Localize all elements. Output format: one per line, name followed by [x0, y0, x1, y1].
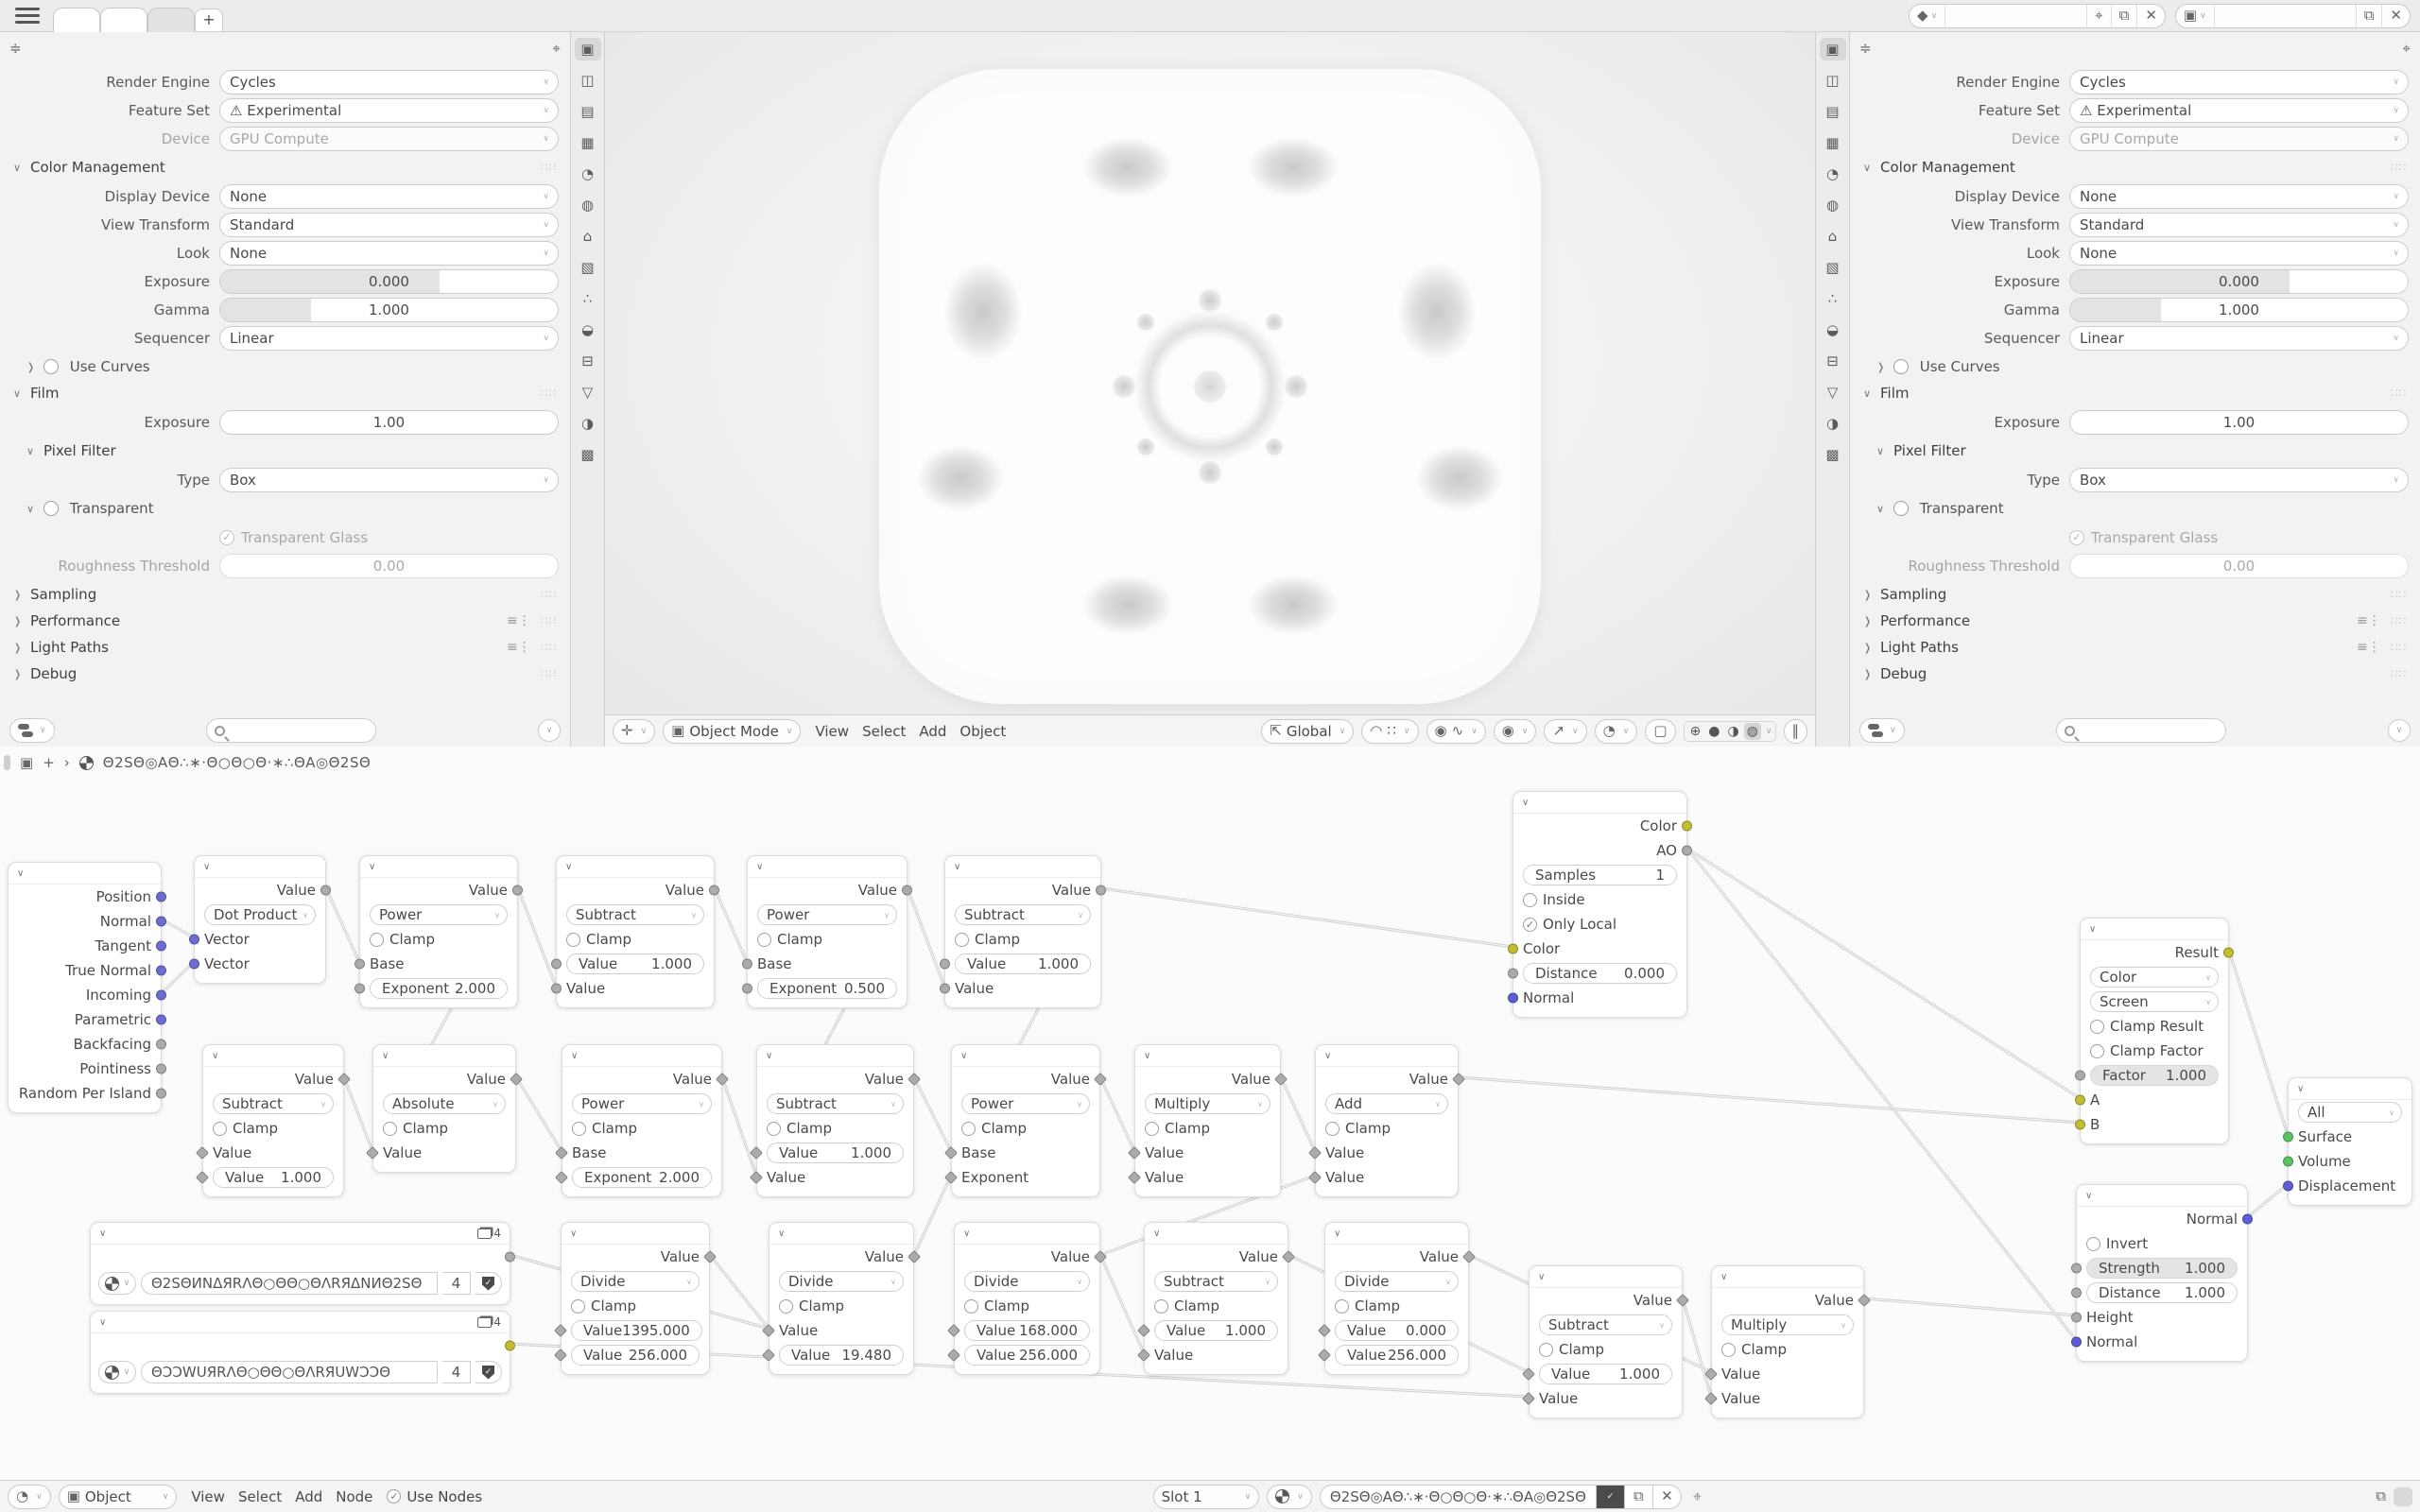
value-field-value[interactable]: Value1.000: [955, 954, 1091, 974]
properties-tab-object-data[interactable]: ▽: [1820, 381, 1846, 404]
drag-dots-icon[interactable]: ∷∷: [541, 614, 557, 627]
image-name-field[interactable]: ΘƆƆWUЯRΛΘ○ΘΘ○ΘΛRЯUWƆƆΘ: [141, 1361, 438, 1383]
node-editor-type-button[interactable]: ◔∨: [8, 1485, 51, 1509]
proportional-editing-controls[interactable]: ◉∿∨: [1426, 719, 1486, 744]
output-socket[interactable]: [505, 1341, 515, 1351]
section-sampling[interactable]: ❭Sampling∷∷: [1850, 581, 2420, 608]
properties-tab-world[interactable]: ◍: [575, 194, 601, 216]
output-socket[interactable]: [156, 892, 166, 902]
xray-toggle[interactable]: ▢: [1645, 719, 1675, 744]
value-field-value[interactable]: Value1.000: [1154, 1320, 1278, 1341]
checkbox-clamp[interactable]: Clamp: [961, 1120, 1027, 1137]
node-header[interactable]: ∨4: [91, 1312, 510, 1333]
output-socket[interactable]: [156, 1064, 166, 1074]
node-operation-dropdown[interactable]: Divide∨: [1335, 1271, 1459, 1292]
node-math-multiply-1[interactable]: ∨ValueMultiply∨ClampValueValue: [1134, 1044, 1281, 1197]
section-pixel-filter[interactable]: ∨Pixel Filter: [0, 438, 570, 464]
node-math-multiply-2[interactable]: ∨ValueMultiply∨ClampValueValue: [1711, 1265, 1864, 1418]
properties-tab-physics[interactable]: ◒: [575, 318, 601, 341]
properties-tab-constraints[interactable]: ⊟: [575, 350, 601, 372]
node-header[interactable]: ∨4: [91, 1223, 510, 1245]
node-operation-dropdown[interactable]: All∨: [2298, 1102, 2402, 1123]
node-header[interactable]: ∨: [2289, 1078, 2411, 1100]
properties-tab-tool[interactable]: ▣: [575, 38, 601, 60]
output-socket[interactable]: [156, 990, 166, 1001]
workspace-tab-3[interactable]: [147, 8, 195, 32]
properties-tab-tool[interactable]: ▣: [1820, 38, 1846, 60]
dropdown-look[interactable]: None∨: [219, 241, 559, 266]
field-gamma[interactable]: 1.000: [2069, 298, 2409, 322]
output-socket[interactable]: [156, 941, 166, 952]
filter-toggle-button[interactable]: ∨: [1859, 718, 1905, 743]
fake-user-toggle[interactable]: ✓: [1597, 1485, 1625, 1509]
section-color-management[interactable]: ∨Color Management∷∷: [1850, 154, 2420, 180]
value-field-value[interactable]: Value256.000: [1335, 1345, 1459, 1366]
node-operation-dropdown[interactable]: Color∨: [2090, 967, 2219, 988]
node-material-output[interactable]: ∨All∨SurfaceVolumeDisplacement: [2288, 1077, 2412, 1206]
node-math-power-3[interactable]: ∨ValuePower∨ClampBaseExponent2.000: [562, 1044, 722, 1197]
output-socket[interactable]: [512, 885, 523, 896]
input-socket[interactable]: [1508, 969, 1518, 979]
output-socket[interactable]: [2242, 1214, 2253, 1225]
section-light-paths[interactable]: ❭Light Paths≡⋮∷∷: [0, 634, 570, 661]
preset-list-icon[interactable]: ≡⋮: [507, 640, 531, 655]
properties-tab-constraints[interactable]: ⊟: [1820, 350, 1846, 372]
input-socket[interactable]: [940, 959, 950, 970]
dropdown-sequencer[interactable]: Linear∨: [219, 326, 559, 351]
properties-tab-render[interactable]: ◫: [1820, 69, 1846, 92]
checkbox-inside[interactable]: Inside: [1523, 891, 1585, 908]
dropdown-view-transform[interactable]: Standard∨: [2069, 213, 2409, 237]
node-header[interactable]: ∨: [955, 1223, 1099, 1245]
drag-dots-icon[interactable]: ∷∷: [2391, 588, 2407, 601]
image-users-count[interactable]: 4: [442, 1272, 471, 1295]
drag-dots-icon[interactable]: ∷∷: [541, 387, 557, 400]
section-debug[interactable]: ❭Debug∷∷: [1850, 661, 2420, 687]
dropdown-render-engine[interactable]: Cycles∨: [219, 70, 559, 94]
checkbox-clamp[interactable]: Clamp: [213, 1120, 278, 1137]
properties-tab-particles[interactable]: ∴: [1820, 287, 1846, 310]
drag-dots-icon[interactable]: ∷∷: [541, 667, 557, 680]
node-math-subtract-5[interactable]: ∨ValueSubtract∨ClampValue1.000Value: [1144, 1222, 1288, 1375]
scene-browse-button[interactable]: ◆∨: [1910, 5, 1945, 27]
material-name-field[interactable]: Θ2SΘ◎AΘ∴∗·Θ○Θ○Θ·∗∴ΘA◎Θ2SΘ: [1320, 1485, 1597, 1509]
field-roughness-threshold[interactable]: 0.00: [219, 554, 559, 578]
node-header[interactable]: ∨: [1712, 1266, 1863, 1288]
value-field-distance[interactable]: Distance1.000: [2086, 1282, 2238, 1303]
input-socket[interactable]: [1508, 993, 1518, 1004]
shading-material-button[interactable]: ◑: [1724, 723, 1741, 740]
input-socket[interactable]: [2071, 1313, 2082, 1323]
output-socket[interactable]: [1682, 846, 1692, 856]
output-socket[interactable]: [1096, 885, 1106, 896]
output-socket[interactable]: [156, 1039, 166, 1050]
node-operation-dropdown[interactable]: Multiply∨: [1145, 1093, 1270, 1114]
node-operation-dropdown[interactable]: Subtract∨: [566, 904, 704, 925]
node-bump[interactable]: ∨NormalInvertStrength1.000Distance1.000H…: [2076, 1184, 2248, 1362]
node-header[interactable]: ∨: [1135, 1045, 1280, 1067]
value-field-value[interactable]: Value1.000: [213, 1167, 334, 1188]
node-menu-node[interactable]: Node: [329, 1488, 379, 1505]
input-socket[interactable]: [551, 959, 562, 970]
image-users-count[interactable]: 4: [442, 1361, 471, 1383]
section-sampling[interactable]: ❭Sampling∷∷: [0, 581, 570, 608]
section-debug[interactable]: ❭Debug∷∷: [0, 661, 570, 687]
viewport-object[interactable]: [879, 69, 1541, 704]
node-header[interactable]: ∨: [557, 856, 714, 878]
fake-user-toggle[interactable]: ✓: [475, 1361, 502, 1383]
image-browse-button[interactable]: ∨: [98, 1361, 136, 1383]
properties-tab-material[interactable]: ◑: [1820, 412, 1846, 435]
workspace-tab-1[interactable]: [53, 8, 100, 32]
dropdown-display-device[interactable]: None∨: [219, 184, 559, 209]
checkbox-clamp[interactable]: Clamp: [779, 1297, 844, 1314]
shading-solid-button[interactable]: ●: [1705, 723, 1722, 740]
section-transparent[interactable]: ∨ Transparent: [0, 495, 570, 522]
overlays-dropdown[interactable]: ◔∨: [1595, 719, 1638, 744]
node-header[interactable]: ∨: [203, 1045, 343, 1067]
properties-tab-modifiers[interactable]: ▧: [1820, 256, 1846, 279]
input-socket[interactable]: [2283, 1132, 2293, 1143]
input-socket[interactable]: [354, 959, 365, 970]
visibility-dropdown[interactable]: ◉∨: [1494, 719, 1537, 744]
output-socket[interactable]: [902, 885, 912, 896]
node-image-texture-1[interactable]: ∨4∨Θ2SΘИNΔЯRΛΘ○ΘΘ○ΘΛRЯΔNИΘ2SΘ4✓: [90, 1222, 510, 1305]
input-socket[interactable]: [940, 984, 950, 994]
output-socket[interactable]: [156, 966, 166, 976]
node-header[interactable]: ∨: [373, 1045, 515, 1067]
properties-tab-object[interactable]: ⌂: [575, 225, 601, 248]
checkbox-clamp[interactable]: Clamp: [1154, 1297, 1219, 1314]
shading-rendered-button[interactable]: ◍: [1744, 723, 1761, 740]
image-name-field[interactable]: Θ2SΘИNΔЯRΛΘ○ΘΘ○ΘΛRЯΔNИΘ2SΘ: [141, 1272, 438, 1295]
node-math-add[interactable]: ∨ValueAdd∨ClampValueValue: [1315, 1044, 1459, 1197]
fake-user-toggle[interactable]: ✓: [475, 1272, 502, 1295]
node-math-subtract-6[interactable]: ∨ValueSubtract∨ClampValue1.000Value: [1529, 1265, 1683, 1418]
properties-tab-world[interactable]: ◍: [1820, 194, 1846, 216]
node-header[interactable]: ∨: [952, 1045, 1099, 1067]
field-exposure[interactable]: 1.00: [219, 410, 559, 435]
properties-tab-material[interactable]: ◑: [575, 412, 601, 435]
node-header[interactable]: ∨: [2081, 919, 2228, 940]
properties-editor-icon[interactable]: ≑: [1859, 42, 1872, 56]
node-canvas[interactable]: ▣ + › Θ2SΘ◎AΘ∴∗·Θ○Θ○Θ·∗∴ΘA◎Θ2SΘ ∨Positio…: [0, 747, 2420, 1480]
checkbox-invert[interactable]: Invert: [2086, 1235, 2148, 1252]
viewport-menu-add[interactable]: Add: [912, 723, 953, 740]
checkbox-clamp[interactable]: Clamp: [955, 931, 1020, 948]
dropdown-type[interactable]: Box∨: [219, 468, 559, 492]
editor-corner-handle[interactable]: [2394, 1487, 2412, 1506]
node-math-divide-4[interactable]: ∨ValueDivide∨ClampValue0.000Value256.000: [1324, 1222, 1469, 1375]
input-socket[interactable]: [1508, 944, 1518, 954]
checkbox-transparent-glass[interactable]: [2069, 530, 2084, 545]
node-header[interactable]: ∨: [748, 856, 907, 878]
section-film[interactable]: ∨Film∷∷: [0, 380, 570, 406]
node-math-absolute[interactable]: ∨ValueAbsolute∨ClampValue: [372, 1044, 516, 1173]
field-exposure[interactable]: 0.000: [2069, 269, 2409, 294]
node-operation-dropdown[interactable]: Power∨: [757, 904, 897, 925]
node-operation-dropdown[interactable]: Screen∨: [2090, 991, 2219, 1012]
checkbox-clamp-result[interactable]: Clamp Result: [2090, 1018, 2204, 1035]
section-transparent[interactable]: ∨ Transparent: [1850, 495, 2420, 522]
scene-unlink-button[interactable]: ✕: [2136, 5, 2165, 27]
preset-list-icon[interactable]: ≡⋮: [2357, 640, 2381, 655]
dropdown-render-engine[interactable]: Cycles∨: [2069, 70, 2409, 94]
viewport-menu-view[interactable]: View: [808, 723, 856, 740]
input-socket[interactable]: [2071, 1337, 2082, 1348]
dropdown-display-device[interactable]: None∨: [2069, 184, 2409, 209]
value-field-exponent[interactable]: Exponent2.000: [572, 1167, 712, 1188]
mode-dropdown[interactable]: ▣Object Mode∨: [663, 719, 801, 744]
material-browse-button[interactable]: ∨: [1267, 1485, 1312, 1509]
image-browse-button[interactable]: ∨: [98, 1272, 136, 1295]
input-socket[interactable]: [2283, 1181, 2293, 1192]
node-header[interactable]: ∨: [945, 856, 1100, 878]
drag-dots-icon[interactable]: ∷∷: [2391, 161, 2407, 174]
pin-button[interactable]: ⌖: [1689, 1487, 1705, 1506]
output-socket[interactable]: [156, 1089, 166, 1099]
node-ambient-occlusion[interactable]: ∨ColorAOSamples1InsideOnly LocalColorDis…: [1512, 791, 1687, 1018]
properties-pin-icon[interactable]: ⌖: [2403, 42, 2411, 56]
value-field-factor[interactable]: Factor1.000: [2090, 1065, 2219, 1086]
node-math-subtract-3[interactable]: ∨ValueSubtract∨ClampValueValue1.000: [202, 1044, 344, 1197]
checkbox-clamp[interactable]: Clamp: [572, 1120, 637, 1137]
snap-controls[interactable]: ◠∷∨: [1361, 719, 1418, 744]
dropdown-look[interactable]: None∨: [2069, 241, 2409, 266]
checkbox-clamp[interactable]: Clamp: [1335, 1297, 1400, 1314]
value-field-exponent[interactable]: Exponent0.500: [757, 978, 897, 999]
node-operation-dropdown[interactable]: Divide∨: [779, 1271, 904, 1292]
node-operation-dropdown[interactable]: Dot Product∨: [204, 904, 316, 925]
section-use-curves[interactable]: ❭ Use Curves: [0, 353, 570, 380]
output-socket[interactable]: [1682, 821, 1692, 832]
checkbox-clamp[interactable]: Clamp: [757, 931, 822, 948]
drag-dots-icon[interactable]: ∷∷: [2391, 387, 2407, 400]
value-field-value[interactable]: Value168.000: [964, 1320, 1090, 1341]
section-film[interactable]: ∨Film∷∷: [1850, 380, 2420, 406]
section-color-management[interactable]: ∨Color Management∷∷: [0, 154, 570, 180]
field-roughness-threshold[interactable]: 0.00: [2069, 554, 2409, 578]
properties-search-input[interactable]: [206, 718, 376, 743]
scene-name-field[interactable]: [1945, 5, 2086, 27]
gizmo-dropdown[interactable]: ↗∨: [1544, 719, 1586, 744]
node-operation-dropdown[interactable]: Divide∨: [964, 1271, 1090, 1292]
output-socket[interactable]: [156, 1015, 166, 1025]
value-field-value[interactable]: Value256.000: [571, 1345, 700, 1366]
node-header[interactable]: ∨: [769, 1223, 913, 1245]
node-operation-dropdown[interactable]: Multiply∨: [1721, 1314, 1854, 1335]
shader-type-dropdown[interactable]: ▣Object∨: [59, 1485, 178, 1509]
value-field-distance[interactable]: Distance0.000: [1523, 963, 1677, 984]
material-slot-dropdown[interactable]: Slot 1∨: [1153, 1485, 1260, 1509]
properties-tab-texture[interactable]: ▩: [575, 443, 601, 466]
drag-dots-icon[interactable]: ∷∷: [541, 641, 557, 654]
view-layer-copy-button[interactable]: ⧉: [2356, 5, 2382, 27]
node-operation-dropdown[interactable]: Subtract∨: [767, 1093, 904, 1114]
view-layer-browse-button[interactable]: ▣∨: [2176, 5, 2214, 27]
value-field-exponent[interactable]: Exponent2.000: [370, 978, 508, 999]
copy-material-button[interactable]: ⧉: [1625, 1485, 1653, 1509]
dropdown-view-transform[interactable]: Standard∨: [219, 213, 559, 237]
output-socket[interactable]: [2223, 948, 2234, 958]
dropdown-type[interactable]: Box∨: [2069, 468, 2409, 492]
checkbox-clamp[interactable]: Clamp: [1325, 1120, 1391, 1137]
node-math-power-1[interactable]: ∨ValuePower∨ClampBaseExponent2.000: [359, 855, 518, 1008]
input-socket[interactable]: [2283, 1157, 2293, 1167]
drag-dots-icon[interactable]: ∷∷: [541, 588, 557, 601]
drag-dots-icon[interactable]: ∷∷: [541, 161, 557, 174]
properties-tab-view-layer[interactable]: ▦: [575, 131, 601, 154]
input-socket[interactable]: [189, 935, 199, 945]
node-header[interactable]: ∨: [195, 856, 325, 878]
drag-dots-icon[interactable]: ∷∷: [2391, 667, 2407, 680]
value-field-value[interactable]: Value1.000: [566, 954, 704, 974]
unlink-material-button[interactable]: ✕: [1653, 1485, 1682, 1509]
properties-tab-scene[interactable]: ◔: [575, 163, 601, 185]
node-math-subtract-1[interactable]: ∨ValueSubtract∨ClampValue1.000Value: [556, 855, 715, 1008]
node-header[interactable]: ∨: [9, 863, 161, 885]
input-socket[interactable]: [2075, 1095, 2085, 1106]
properties-tab-output[interactable]: ▤: [575, 100, 601, 123]
node-image-texture-2[interactable]: ∨4∨ΘƆƆWUЯRΛΘ○ΘΘ○ΘΛRЯUWƆƆΘ4✓: [90, 1311, 510, 1394]
view-layer-remove-button[interactable]: ✕: [2381, 5, 2410, 27]
node-mix-color[interactable]: ∨ResultColor∨Screen∨Clamp ResultClamp Fa…: [2080, 918, 2229, 1144]
checkbox-clamp[interactable]: Clamp: [767, 1120, 832, 1137]
field-gamma[interactable]: 1.000: [219, 298, 559, 322]
editor-link-icon[interactable]: ⧉: [2376, 1489, 2386, 1503]
properties-tab-output[interactable]: ▤: [1820, 100, 1846, 123]
node-math-subtract-4[interactable]: ∨ValueSubtract∨ClampValue1.000Value: [756, 1044, 914, 1197]
app-menu-icon[interactable]: [15, 8, 40, 24]
dropdown-device[interactable]: GPU Compute∨: [2069, 127, 2409, 151]
output-socket[interactable]: [709, 885, 719, 896]
section-performance[interactable]: ❭Performance≡⋮∷∷: [1850, 608, 2420, 634]
viewport-menu-object[interactable]: Object: [953, 723, 1012, 740]
value-field-value[interactable]: Value1.000: [767, 1143, 904, 1163]
input-socket[interactable]: [742, 959, 752, 970]
value-field-strength[interactable]: Strength1.000: [2086, 1258, 2238, 1279]
viewport-editor-type-button[interactable]: ✛∨: [613, 719, 655, 744]
node-header[interactable]: ∨: [360, 856, 517, 878]
node-operation-dropdown[interactable]: Divide∨: [571, 1271, 700, 1292]
section-light-paths[interactable]: ❭Light Paths≡⋮∷∷: [1850, 634, 2420, 661]
field-exposure[interactable]: 0.000: [219, 269, 559, 294]
node-math-divide-1[interactable]: ∨ValueDivide∨ClampValue1395.000Value256.…: [561, 1222, 710, 1375]
properties-tab-scene[interactable]: ◔: [1820, 163, 1846, 185]
node-operation-dropdown[interactable]: Subtract∨: [1154, 1271, 1278, 1292]
node-operation-dropdown[interactable]: Power∨: [572, 1093, 712, 1114]
node-header[interactable]: ∨: [1513, 792, 1686, 814]
viewport-menu-select[interactable]: Select: [856, 723, 912, 740]
section-use-curves[interactable]: ❭ Use Curves: [1850, 353, 2420, 380]
input-socket[interactable]: [2071, 1263, 2082, 1274]
scene-copy-button[interactable]: ⧉: [2111, 5, 2137, 27]
checkbox-clamp[interactable]: Clamp: [566, 931, 631, 948]
value-field-value[interactable]: Value1.000: [1539, 1364, 1672, 1384]
input-socket[interactable]: [189, 959, 199, 970]
node-operation-dropdown[interactable]: Add∨: [1325, 1093, 1448, 1114]
preset-list-icon[interactable]: ≡⋮: [507, 613, 531, 628]
checkbox-clamp[interactable]: Clamp: [1145, 1120, 1210, 1137]
scene-pin-button[interactable]: ⌖: [2086, 5, 2110, 27]
node-header[interactable]: ∨: [562, 1223, 709, 1245]
node-menu-add[interactable]: Add: [288, 1488, 329, 1505]
node-operation-dropdown[interactable]: Subtract∨: [1539, 1314, 1672, 1335]
properties-tab-object-data[interactable]: ▽: [575, 381, 601, 404]
properties-search-input[interactable]: [2056, 718, 2226, 743]
dropdown-feature-set[interactable]: ⚠ Experimental∨: [2069, 98, 2409, 123]
value-field-samples[interactable]: Samples1: [1523, 865, 1677, 885]
field-exposure[interactable]: 1.00: [2069, 410, 2409, 435]
add-workspace-button[interactable]: +: [195, 9, 223, 31]
node-operation-dropdown[interactable]: Subtract∨: [213, 1093, 334, 1114]
node-menu-view[interactable]: View: [184, 1488, 232, 1505]
checkbox-transparent-glass[interactable]: [219, 530, 234, 545]
node-operation-dropdown[interactable]: Power∨: [370, 904, 508, 925]
input-socket[interactable]: [2075, 1120, 2085, 1130]
properties-tab-modifiers[interactable]: ▧: [575, 256, 601, 279]
node-math-divide-2[interactable]: ∨ValueDivide∨ClampValueValue19.480: [769, 1222, 914, 1375]
properties-tab-texture[interactable]: ▩: [1820, 443, 1846, 466]
panel-options-button[interactable]: ∨: [2388, 719, 2411, 742]
use-nodes-toggle[interactable]: Use Nodes: [387, 1488, 482, 1505]
section-pixel-filter[interactable]: ∨Pixel Filter: [1850, 438, 2420, 464]
node-geometry[interactable]: ∨PositionNormalTangentTrue NormalIncomin…: [8, 862, 162, 1113]
section-performance[interactable]: ❭Performance≡⋮∷∷: [0, 608, 570, 634]
output-socket[interactable]: [505, 1252, 515, 1263]
properties-tab-object[interactable]: ⌂: [1820, 225, 1846, 248]
node-math-dot-product[interactable]: ∨ValueDot Product∨VectorVector: [194, 855, 326, 984]
section-checkbox[interactable]: [1893, 359, 1909, 374]
node-math-subtract-2[interactable]: ∨ValueSubtract∨ClampValue1.000Value: [944, 855, 1101, 1008]
checkbox-only-local[interactable]: Only Local: [1523, 916, 1616, 933]
value-field-value[interactable]: Value256.000: [964, 1345, 1090, 1366]
node-header[interactable]: ∨: [757, 1045, 913, 1067]
input-socket[interactable]: [742, 984, 752, 994]
node-math-power-4[interactable]: ∨ValuePower∨ClampBaseExponent: [951, 1044, 1100, 1197]
properties-tab-render[interactable]: ◫: [575, 69, 601, 92]
panel-options-button[interactable]: ∨: [538, 719, 561, 742]
section-checkbox[interactable]: [43, 501, 59, 516]
output-socket[interactable]: [156, 917, 166, 927]
dropdown-sequencer[interactable]: Linear∨: [2069, 326, 2409, 351]
properties-tab-physics[interactable]: ◒: [1820, 318, 1846, 341]
section-checkbox[interactable]: [43, 359, 59, 374]
checkbox-clamp[interactable]: Clamp: [571, 1297, 636, 1314]
preset-list-icon[interactable]: ≡⋮: [2357, 613, 2381, 628]
properties-editor-icon[interactable]: ≑: [9, 42, 22, 56]
properties-tab-view-layer[interactable]: ▦: [1820, 131, 1846, 154]
value-field-value[interactable]: Value19.480: [779, 1345, 904, 1366]
checkbox-clamp[interactable]: Clamp: [1721, 1341, 1787, 1358]
node-header[interactable]: ∨: [1145, 1223, 1288, 1245]
node-operation-dropdown[interactable]: Absolute∨: [383, 1093, 506, 1114]
node-menu-select[interactable]: Select: [232, 1488, 288, 1505]
input-socket[interactable]: [2075, 1071, 2085, 1081]
node-operation-dropdown[interactable]: Power∨: [961, 1093, 1090, 1114]
checkbox-clamp[interactable]: Clamp: [383, 1120, 448, 1137]
shading-wireframe-button[interactable]: ⊕: [1687, 723, 1704, 740]
dropdown-feature-set[interactable]: ⚠ Experimental∨: [219, 98, 559, 123]
input-socket[interactable]: [2071, 1288, 2082, 1298]
input-socket[interactable]: [551, 984, 562, 994]
viewport-canvas[interactable]: [605, 32, 1815, 714]
properties-pin-icon[interactable]: ⌖: [553, 42, 561, 56]
pause-render-button[interactable]: ‖: [1784, 719, 1808, 744]
filter-toggle-button[interactable]: ∨: [9, 718, 55, 743]
properties-tab-particles[interactable]: ∴: [575, 287, 601, 310]
viewport-3d[interactable]: ✛∨ ▣Object Mode∨ ViewSelectAddObject ⇱Gl…: [605, 32, 1815, 747]
